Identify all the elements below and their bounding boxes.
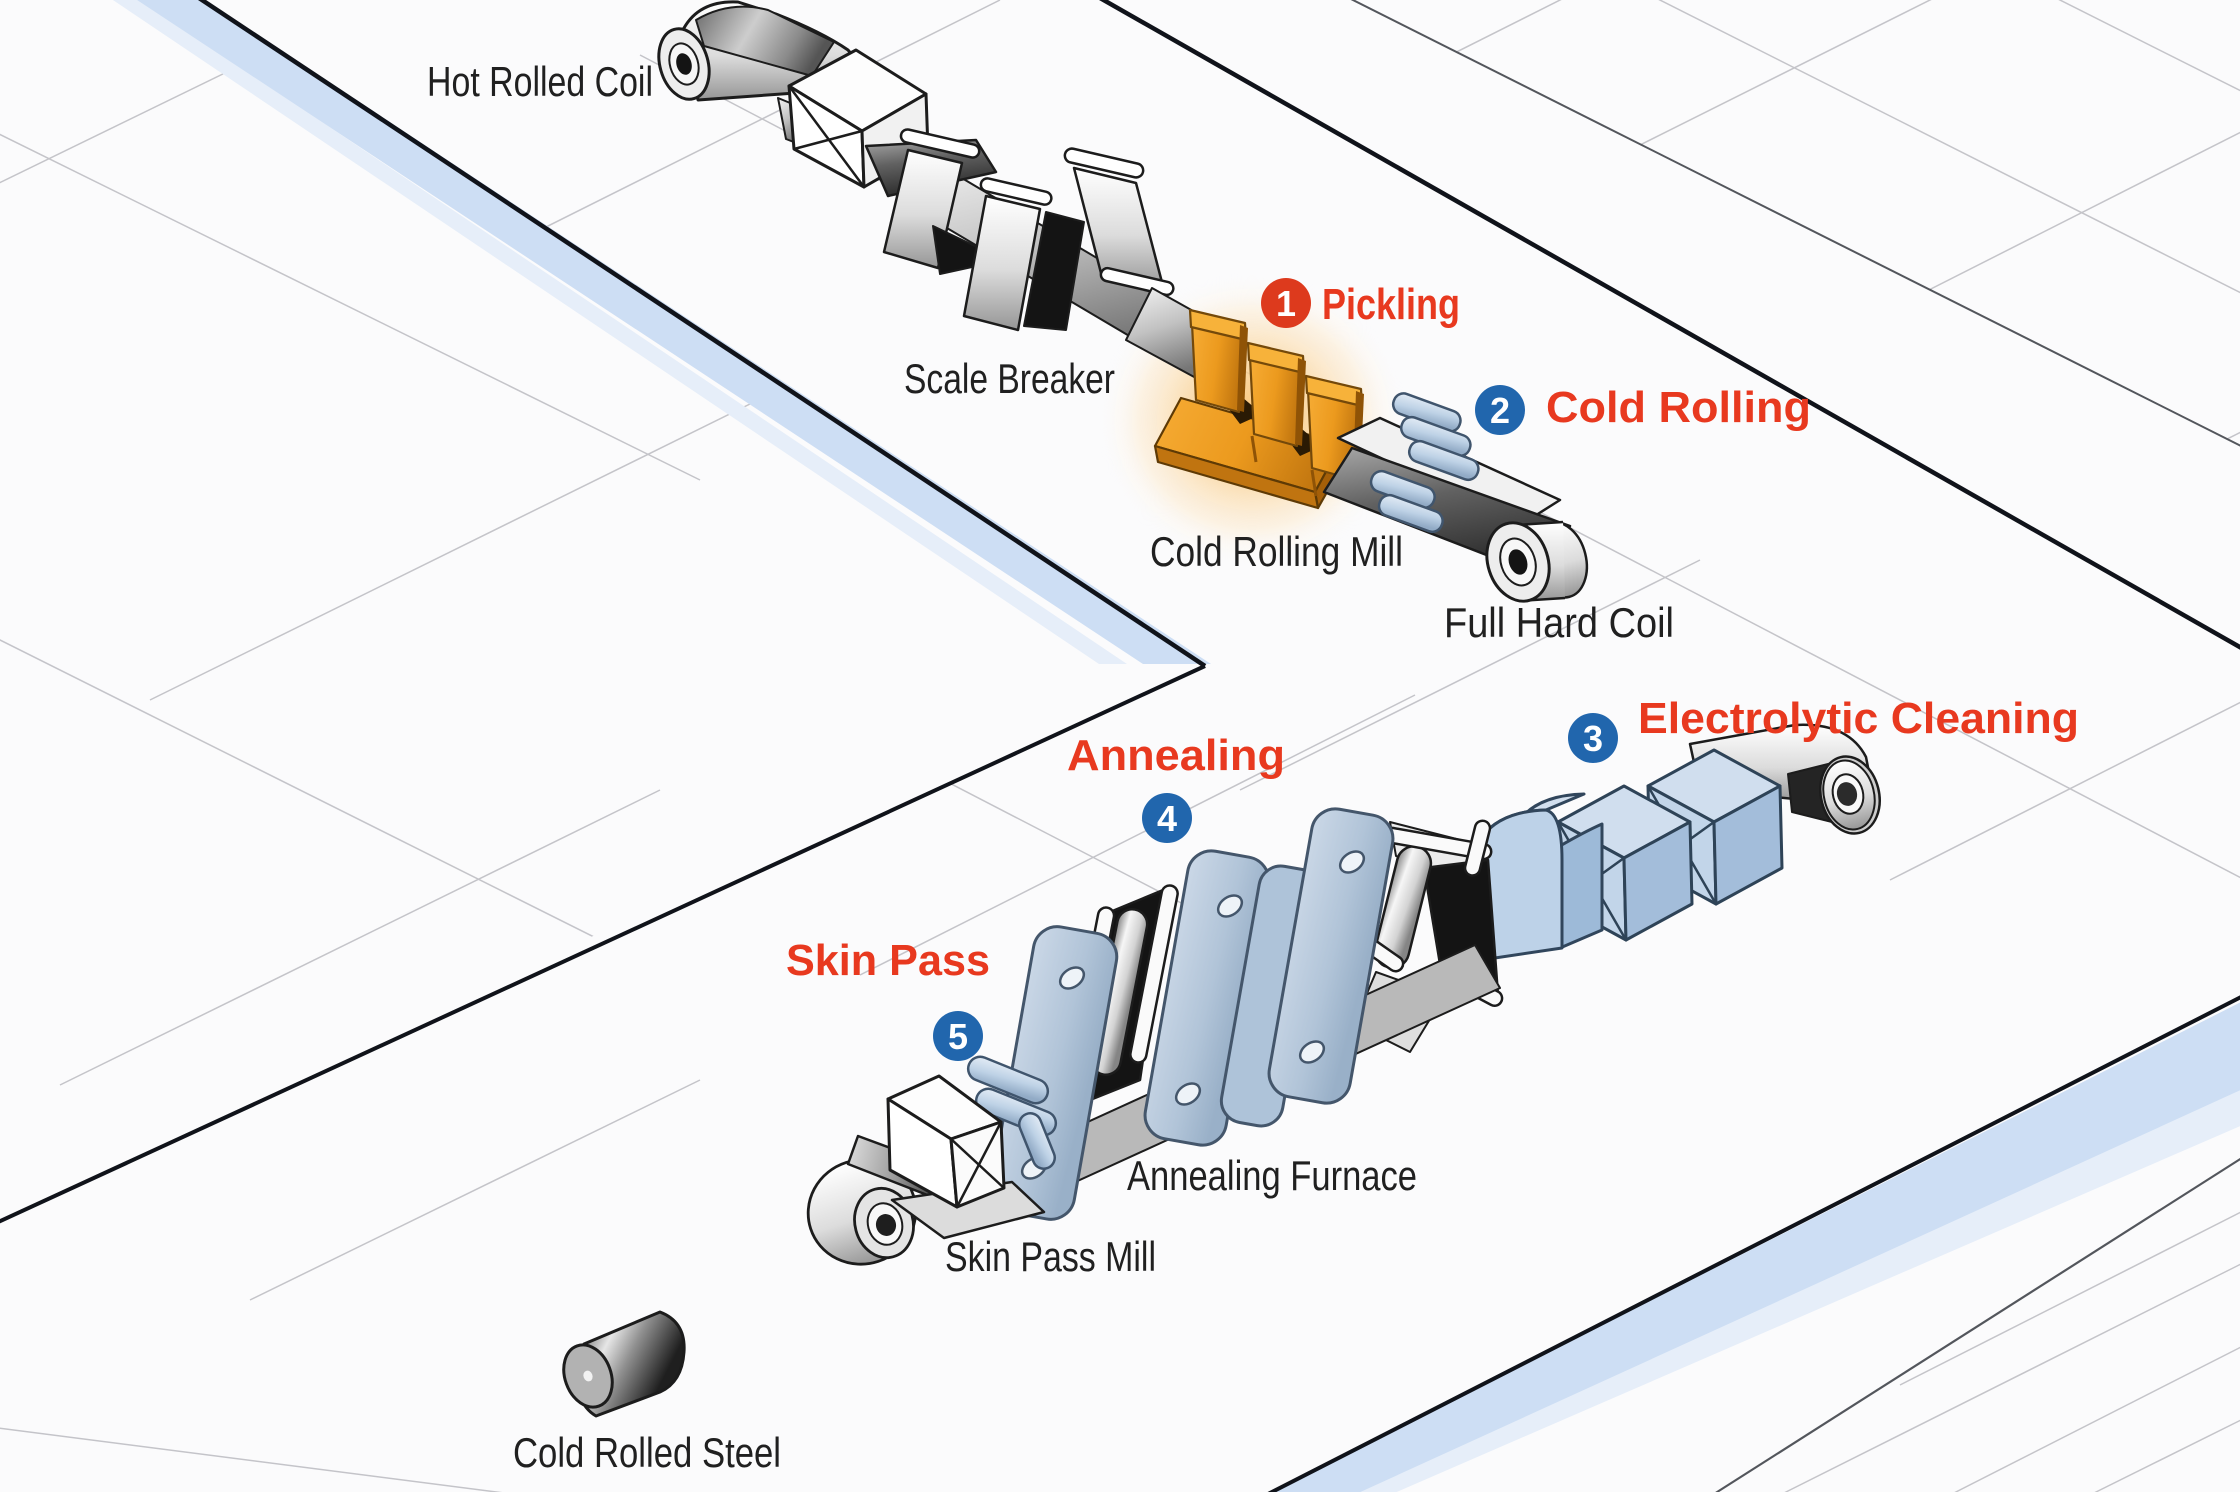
svg-text:1: 1 xyxy=(1276,283,1296,324)
svg-text:Cold Rolling: Cold Rolling xyxy=(1546,383,1811,432)
svg-text:Hot Rolled Coil: Hot Rolled Coil xyxy=(427,58,653,105)
svg-text:5: 5 xyxy=(948,1016,968,1057)
svg-text:Cold Rolled Steel: Cold Rolled Steel xyxy=(513,1429,781,1476)
svg-text:Skin Pass: Skin Pass xyxy=(786,936,990,985)
svg-text:Full Hard Coil: Full Hard Coil xyxy=(1444,599,1674,646)
svg-text:4: 4 xyxy=(1157,798,1177,839)
svg-text:3: 3 xyxy=(1583,718,1603,759)
svg-text:Pickling: Pickling xyxy=(1322,280,1460,329)
svg-text:Skin Pass Mill: Skin Pass Mill xyxy=(945,1233,1156,1280)
svg-text:Scale Breaker: Scale Breaker xyxy=(904,355,1115,402)
svg-text:Electrolytic Cleaning: Electrolytic Cleaning xyxy=(1638,694,2079,743)
svg-text:Cold Rolling Mill: Cold Rolling Mill xyxy=(1150,528,1403,575)
svg-text:2: 2 xyxy=(1490,390,1510,431)
svg-text:Annealing Furnace: Annealing Furnace xyxy=(1127,1152,1417,1199)
svg-text:Annealing: Annealing xyxy=(1067,731,1285,780)
